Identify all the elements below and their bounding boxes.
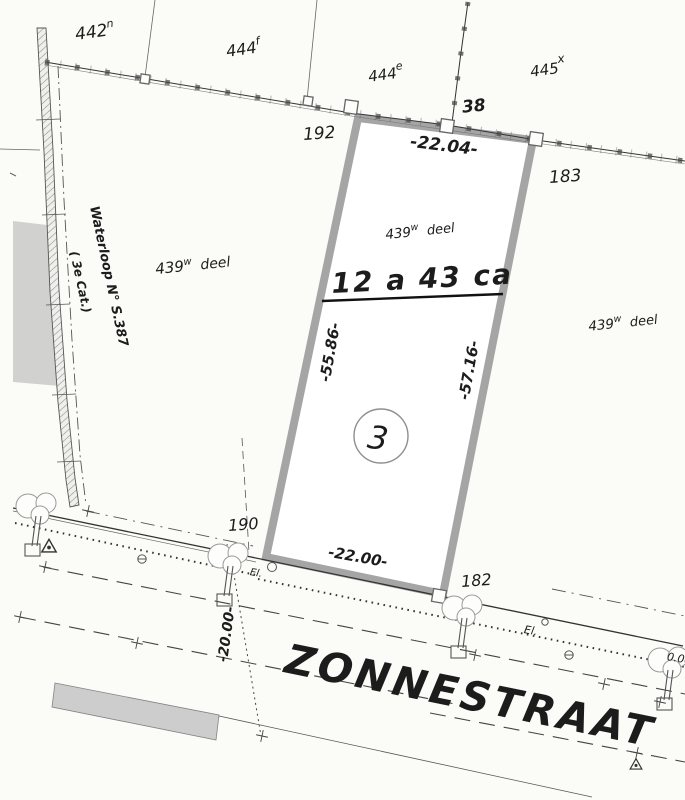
parcel-label-442n: 442n: [73, 17, 115, 45]
point-label-183: 183: [548, 166, 582, 188]
map-canvas: 442n 444f 444e 445x 38 192 183 190 182 W…: [0, 0, 685, 800]
road-dashdot-east: [552, 589, 685, 616]
waterway-label-line1: Waterloop N° S.387: [86, 205, 131, 349]
triangle-marker-icon: [630, 759, 642, 769]
circle-plus-icon: [138, 555, 146, 563]
setback-dash-line: [242, 438, 249, 552]
parcel-label-439w-left: 439w deel: [154, 252, 231, 278]
point-label-38: 38: [461, 95, 487, 117]
dimension-depth: -20.00-: [215, 605, 239, 663]
point-label-190: 190: [227, 514, 259, 535]
street-name: ZONNESTRAAT: [279, 634, 659, 756]
left-edge-line: [0, 149, 40, 150]
circle-plus-icon: [565, 651, 573, 659]
boundary-point-circle: [268, 563, 277, 572]
cadastral-map: 442n 444f 444e 445x 38 192 183 190 182 W…: [0, 0, 685, 800]
road-point-circle: [542, 619, 548, 625]
left-edge-dash: [10, 173, 16, 176]
parcel-label-445x: 445x: [528, 51, 568, 81]
tree-label-east: El.: [523, 623, 539, 638]
tree-icon: [442, 595, 482, 658]
tree-icon: [208, 543, 248, 606]
lot-3-boundary: [266, 118, 533, 594]
waterway-label-line2: ( 3e Cat.): [67, 250, 94, 315]
point-label-182: 182: [460, 570, 492, 591]
parcel-label-444f: 444f: [224, 34, 263, 61]
point-label-192: 192: [302, 123, 336, 145]
tree-label-west: El.: [249, 567, 263, 580]
road-verge-strip: [52, 683, 219, 740]
parcel-label-439w-right: 439w deel: [587, 310, 658, 335]
parcel-label-444e: 444e: [366, 59, 404, 86]
triangle-marker-icon: [42, 539, 56, 552]
